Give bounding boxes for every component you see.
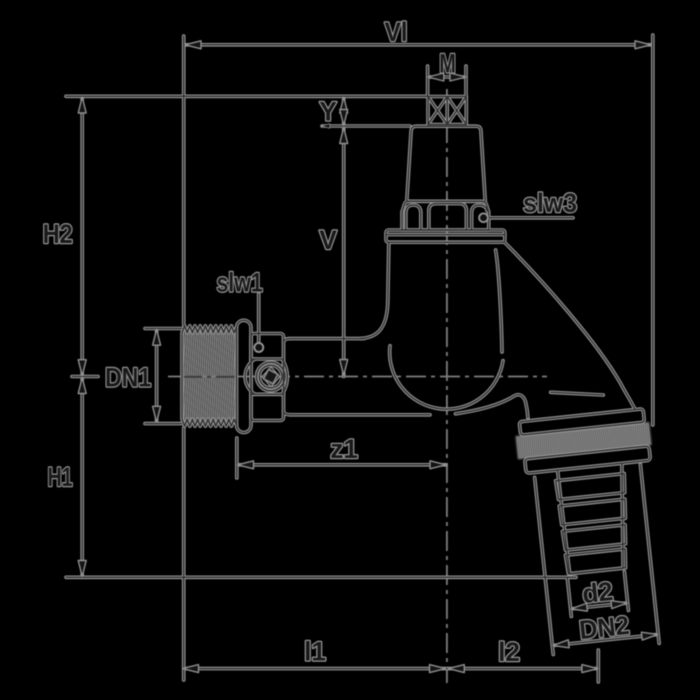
svg-text:DN1: DN1: [105, 362, 151, 392]
svg-text:H2: H2: [43, 219, 73, 249]
svg-text:Vl: Vl: [385, 17, 408, 47]
svg-text:z1: z1: [330, 434, 358, 464]
svg-text:H1: H1: [48, 462, 73, 492]
svg-text:slw3: slw3: [523, 188, 577, 218]
svg-text:Y: Y: [319, 97, 337, 127]
svg-text:slw1: slw1: [217, 267, 263, 297]
svg-text:d2: d2: [581, 576, 614, 609]
svg-text:V: V: [319, 225, 337, 255]
svg-text:l2: l2: [498, 637, 520, 667]
svg-text:l1: l1: [304, 636, 326, 666]
svg-text:M: M: [439, 49, 456, 79]
svg-text:DN2: DN2: [578, 610, 631, 645]
